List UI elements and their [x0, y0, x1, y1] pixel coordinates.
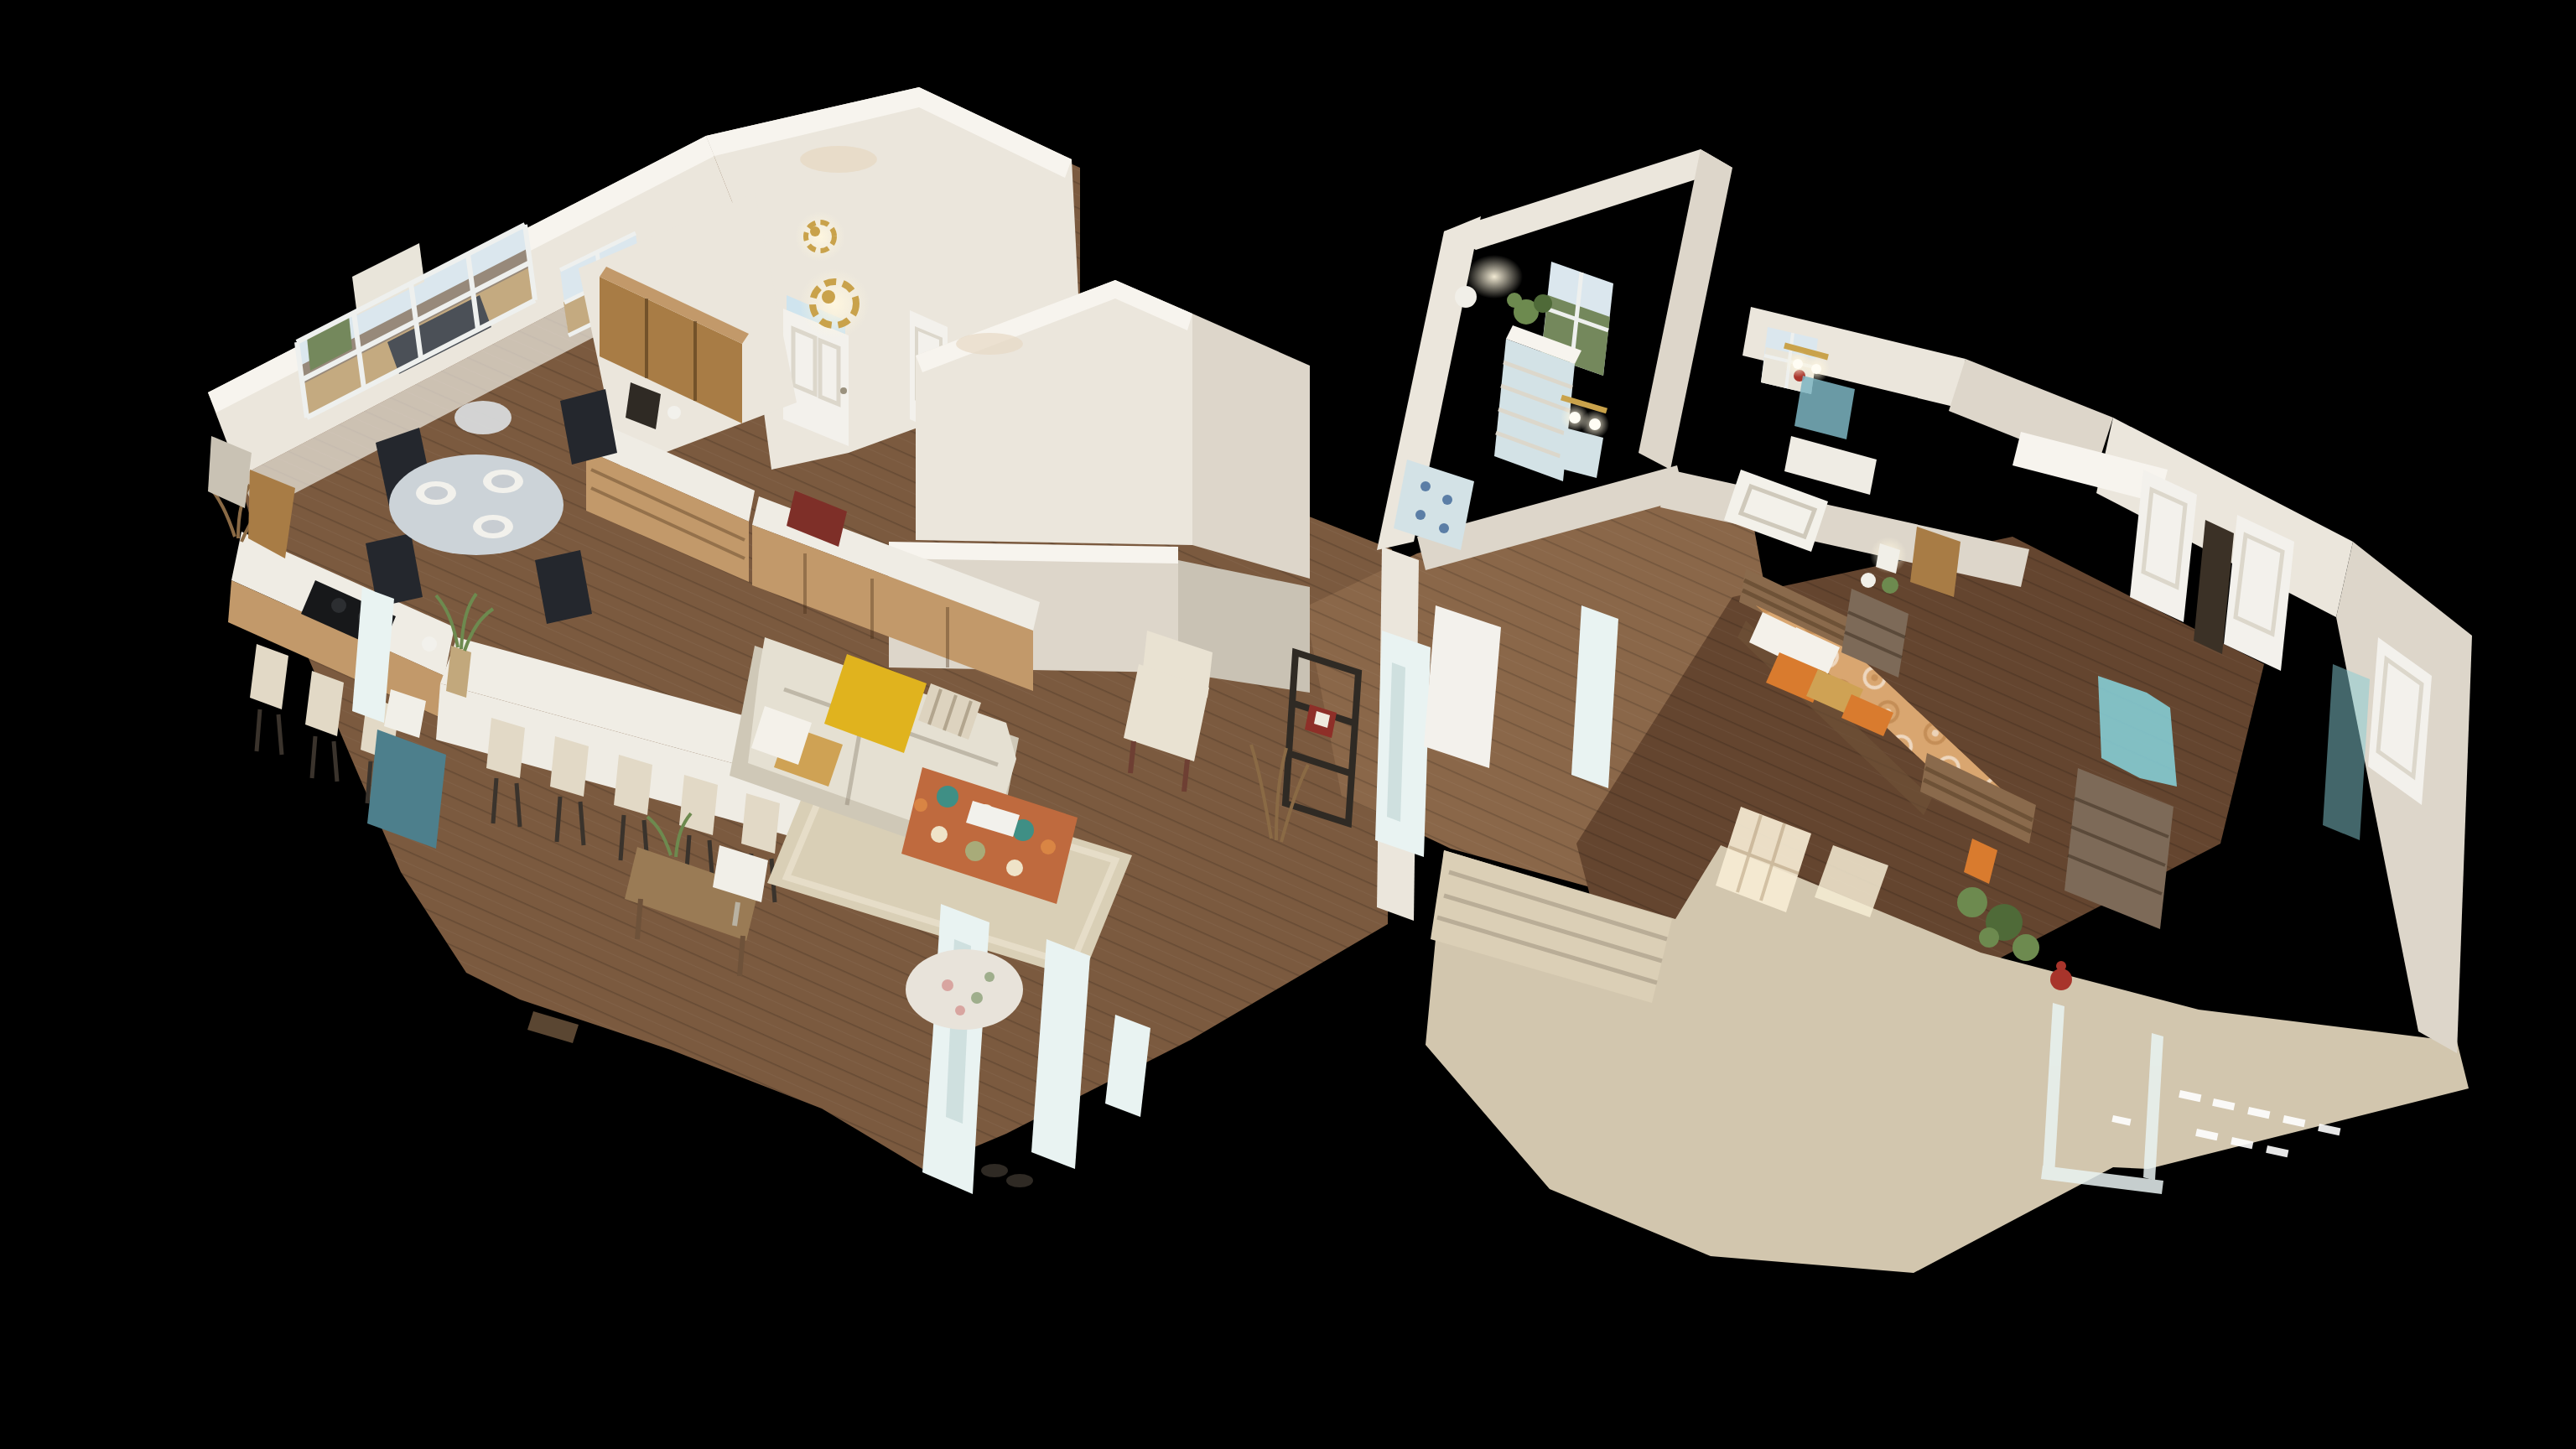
pendant-light [454, 401, 512, 434]
nightstand-plant [1882, 577, 1898, 594]
wall-tear-blob [800, 146, 877, 173]
white-mug [667, 406, 681, 419]
leaning-door-artifact [1424, 605, 1501, 768]
dining-table [389, 454, 563, 555]
white-mug [422, 636, 437, 652]
wall-sconce [1455, 286, 1477, 308]
stool [305, 671, 344, 736]
door-knob [840, 387, 847, 394]
wall-tear-blob [956, 333, 1023, 355]
stool [250, 644, 288, 709]
floral-chair-remnant [906, 949, 1023, 1030]
nightstand-lamp [1861, 573, 1876, 588]
dollhouse-viewport[interactable] [0, 0, 2576, 1449]
